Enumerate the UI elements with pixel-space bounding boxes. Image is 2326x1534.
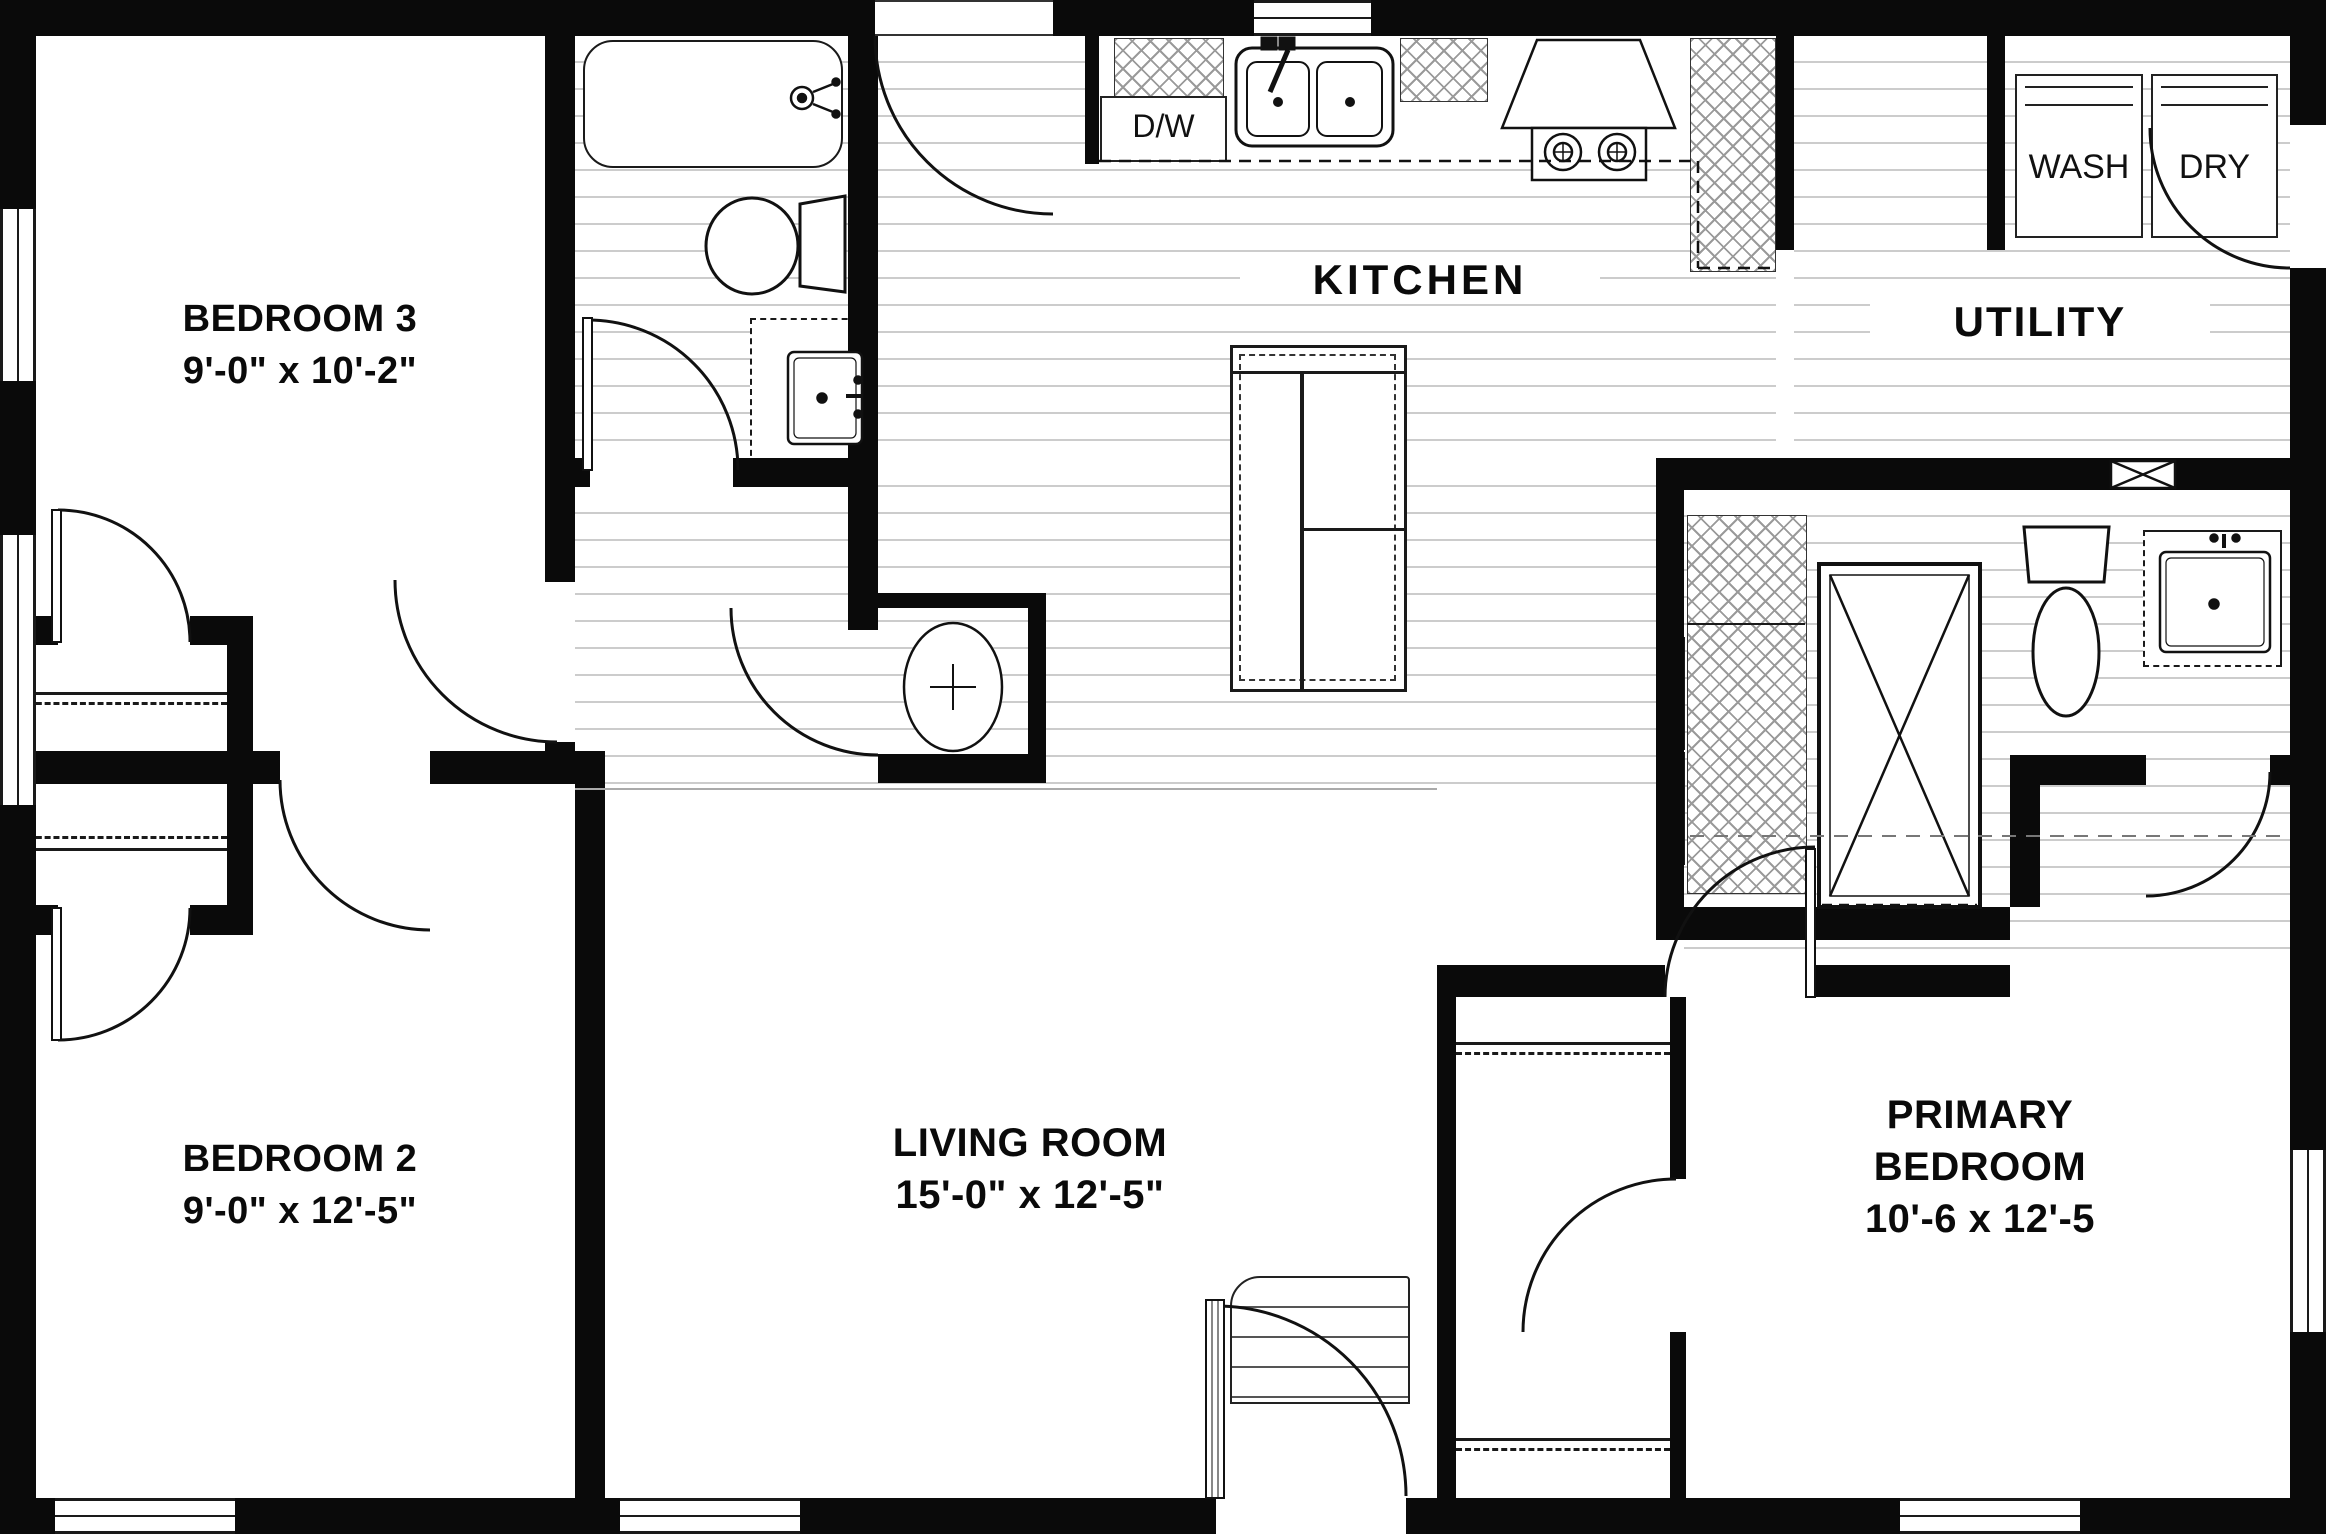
- door-leaf-front-entry: [1206, 1300, 1224, 1498]
- door-leaf-hall-bath: [583, 318, 592, 470]
- bedroom2-label: BEDROOM 2: [95, 1140, 505, 1180]
- door-arc-hall-bath: [588, 320, 738, 470]
- fixtures-layer: [0, 0, 2326, 1534]
- burner-right: [1599, 134, 1635, 170]
- door-arc-rear-entry: [875, 36, 1053, 214]
- hall-bath-sink: [788, 352, 862, 444]
- primary-toilet: [2024, 527, 2109, 716]
- pocket-door: [2111, 461, 2175, 488]
- door-arc-primary-bedroom: [1665, 847, 1815, 997]
- water-heater: [904, 623, 1002, 751]
- bedroom3-dims: 9'-0" x 10'-2": [95, 352, 505, 392]
- shower: [1819, 564, 1980, 907]
- kitchen-sink: [1236, 38, 1393, 146]
- floor-plan: D/W WASH DRY: [0, 0, 2326, 1534]
- door-arc-bedroom3: [395, 580, 557, 742]
- primary-bedroom-label-2: BEDROOM: [1800, 1146, 2160, 1188]
- bedroom2-dims: 9'-0" x 12'-5": [95, 1192, 505, 1232]
- living-room-label: LIVING ROOM: [830, 1122, 1230, 1164]
- counter-edge-dashed: [1099, 161, 1774, 268]
- bathtub-faucet: [791, 79, 840, 118]
- door-arc-bedroom3-closet: [58, 510, 190, 642]
- burner-left: [1545, 134, 1581, 170]
- range-hood: [1502, 40, 1675, 180]
- primary-bedroom-dims: 10'-6 x 12'-5: [1800, 1198, 2160, 1240]
- door-arc-primary-bath: [2146, 772, 2270, 896]
- door-arc-front-entry: [1216, 1306, 1406, 1496]
- door-arc-bedroom2: [280, 780, 430, 930]
- primary-vanity-sink: [2160, 534, 2270, 652]
- utility-label: UTILITY: [1870, 298, 2210, 346]
- door-leaf-bedroom2-closet: [52, 908, 61, 1040]
- bedroom3-label: BEDROOM 3: [95, 300, 505, 340]
- door-arc-utility-entry: [2150, 128, 2290, 268]
- primary-bedroom-label-1: PRIMARY: [1800, 1094, 2160, 1136]
- door-leaf-bedroom3-closet: [52, 510, 61, 642]
- door-leaf-primary-bedroom: [1806, 849, 1815, 997]
- kitchen-label: KITCHEN: [1240, 256, 1600, 304]
- door-arc-water-heater-closet: [731, 608, 878, 755]
- hall-toilet: [706, 196, 845, 294]
- door-arc-bedroom2-closet: [58, 908, 190, 1040]
- door-arc-primary-closet: [1523, 1179, 1676, 1332]
- living-room-dims: 15'-0" x 12'-5": [830, 1174, 1230, 1216]
